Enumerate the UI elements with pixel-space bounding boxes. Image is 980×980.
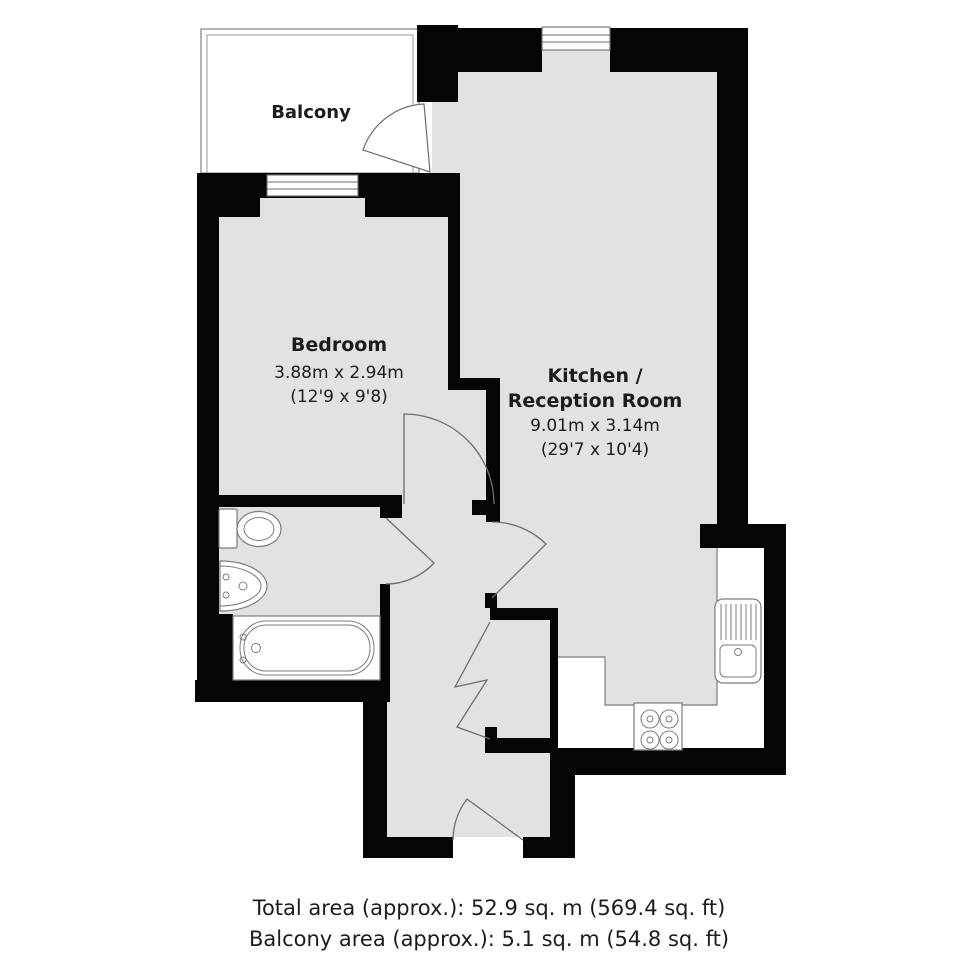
wall-west-bath-thick xyxy=(219,614,233,680)
jamb-bedroom-door-east xyxy=(472,500,486,515)
toilet-icon xyxy=(219,509,281,548)
wall-entrance-left xyxy=(383,837,453,858)
footer-total-area: Total area (approx.): 52.9 sq. m (569.4 … xyxy=(252,896,726,920)
bedroom-dimensions-metric: 3.88m x 2.94m xyxy=(274,363,404,383)
wall-bedroom-kitchen-jog xyxy=(448,378,500,390)
bedroom-label: Bedroom xyxy=(291,334,387,356)
jamb-closet-south xyxy=(485,727,497,738)
jamb-bathroom-door-north xyxy=(380,507,402,518)
floor-plan-page: Balcony Bedroom 3.88m x 2.94m (12'9 x 9'… xyxy=(0,0,980,980)
wall-bedroom-bathroom xyxy=(219,495,402,507)
wall-bathroom-east xyxy=(380,584,390,680)
wall-bedroom-north-bump-right xyxy=(365,198,448,217)
wall-bedroom-kitchen-lower xyxy=(486,390,500,522)
kitchen-window xyxy=(542,27,610,50)
wall-kitchen-east-lower xyxy=(764,548,786,775)
kitchen-dimensions-imperial: (29'7 x 10'4) xyxy=(541,440,649,460)
kitchen-label-line2: Reception Room xyxy=(508,390,683,412)
wall-kitchen-east-step xyxy=(700,524,786,548)
wall-bedroom-north-bump-left xyxy=(219,198,260,217)
footer: Total area (approx.): 52.9 sq. m (569.4 … xyxy=(249,896,729,951)
wall-bathroom-south xyxy=(195,680,390,702)
kitchen-sink-icon xyxy=(715,599,761,683)
floor-plan: Balcony Bedroom 3.88m x 2.94m (12'9 x 9'… xyxy=(0,0,980,980)
kitchen-dimensions-metric: 9.01m x 3.14m xyxy=(530,416,660,436)
wall-hall-east-lower xyxy=(550,753,575,858)
bathtub-icon xyxy=(233,616,380,680)
wall-hall-west xyxy=(363,702,387,858)
wall-kitchen-south xyxy=(558,748,786,775)
wall-closet-east xyxy=(550,620,558,753)
bedroom-window xyxy=(267,175,358,196)
hob-icon xyxy=(634,703,682,750)
balcony-label: Balcony xyxy=(271,102,351,123)
wall-kitchen-east-upper xyxy=(717,28,748,528)
kitchen-window-recess xyxy=(542,50,610,72)
wall-west xyxy=(197,173,219,702)
wall-closet-north xyxy=(490,608,558,620)
kitchen-label-line1: Kitchen / xyxy=(547,365,642,387)
wall-closet-south xyxy=(485,738,558,753)
wall-bedroom-kitchen-upper xyxy=(448,173,460,390)
bedroom-dimensions-imperial: (12'9 x 9'8) xyxy=(290,387,388,407)
footer-balcony-area: Balcony area (approx.): 5.1 sq. m (54.8 … xyxy=(249,927,729,951)
